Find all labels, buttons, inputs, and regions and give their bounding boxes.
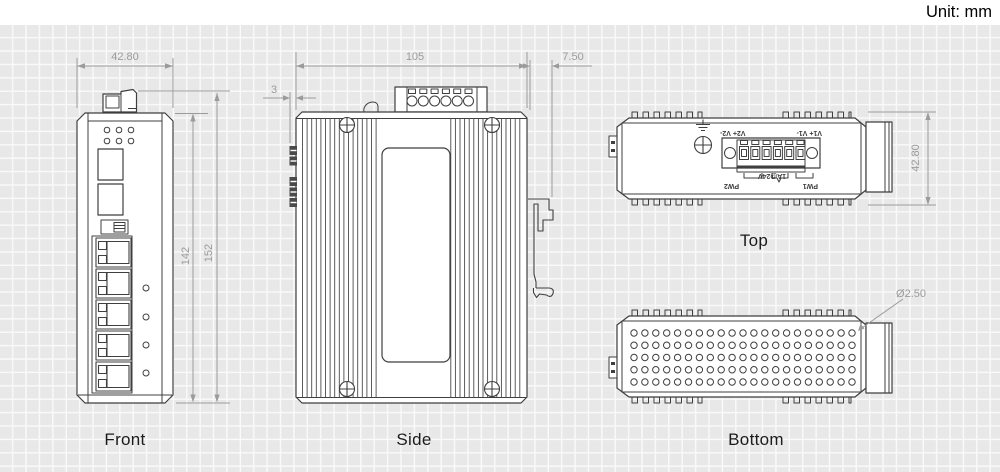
bottom-view-label: Bottom bbox=[712, 429, 800, 451]
terminal-power-labels: PW1 PW2 bbox=[724, 180, 818, 190]
dim-front-height-inner: 142 bbox=[179, 231, 193, 281]
side-wire-clip bbox=[364, 102, 378, 112]
top-view bbox=[609, 112, 892, 205]
side-view bbox=[290, 87, 554, 403]
side-view-label: Side bbox=[374, 429, 454, 451]
terminal-rating-label: 1A@24V bbox=[757, 171, 787, 180]
top-view-label: Top bbox=[714, 230, 794, 252]
side-terminal-block bbox=[395, 87, 487, 112]
bottom-left-tab bbox=[609, 357, 617, 378]
drawing-sheet: Unit: mm 42.80 142 152 105 7.50 3 42.80 … bbox=[0, 0, 1000, 472]
terminal-label-pw2: PW2 bbox=[724, 180, 739, 190]
terminal-voltage-labels: V1+ V1- V2+ V2- bbox=[720, 127, 822, 137]
dim-side-width: 105 bbox=[385, 50, 445, 64]
technical-drawing bbox=[0, 0, 1000, 472]
terminal-label-v1: V1+ V1- bbox=[797, 127, 823, 137]
front-view bbox=[77, 90, 173, 404]
din-rail-clip bbox=[528, 199, 553, 298]
front-view-label: Front bbox=[85, 429, 165, 451]
dim-top-height: 42.80 bbox=[909, 133, 923, 183]
bottom-view bbox=[609, 310, 892, 403]
dim-front-height-outer: 152 bbox=[202, 228, 216, 278]
terminal-label-v2: V2+ V2- bbox=[720, 127, 746, 137]
terminal-label-pw1: PW1 bbox=[803, 180, 818, 190]
unit-label: Unit: mm bbox=[860, 2, 996, 24]
dim-side-tab-offset: 3 bbox=[264, 83, 284, 97]
bottom-din-bracket bbox=[866, 323, 892, 393]
dim-hole-diameter: Ø2.50 bbox=[884, 287, 938, 301]
side-center-panel bbox=[382, 148, 450, 362]
front-top-connector bbox=[103, 90, 137, 113]
dim-front-width: 42.80 bbox=[95, 50, 155, 64]
top-din-bracket bbox=[866, 122, 892, 192]
top-left-tab bbox=[609, 136, 617, 157]
dim-side-clip-depth: 7.50 bbox=[545, 50, 601, 64]
